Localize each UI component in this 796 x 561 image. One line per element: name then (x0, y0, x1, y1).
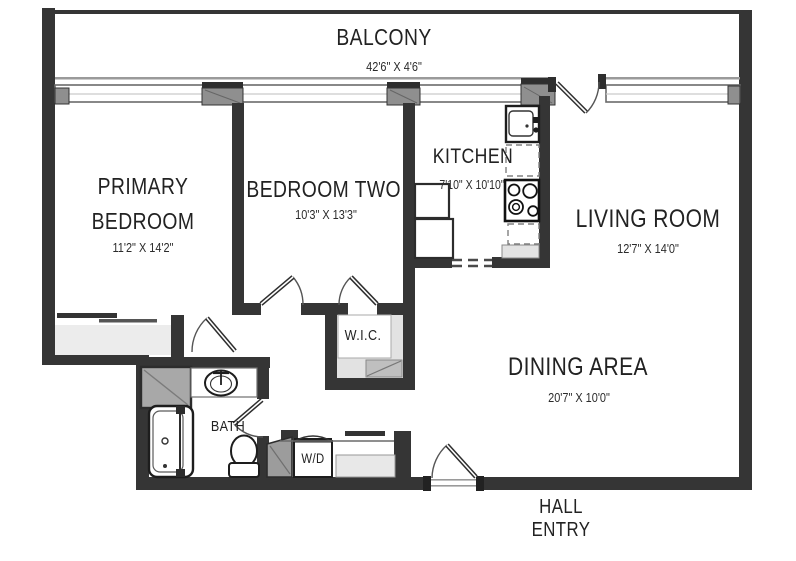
mullion-post (55, 88, 69, 104)
wall-closet-stub (171, 315, 184, 357)
bedroom-two-dims: 10'3" X 13'3" (250, 207, 401, 222)
primary-bedroom-label-line2: BEDROOM (76, 208, 210, 235)
wic-door (339, 277, 377, 305)
kitchen-label: KITCHEN (414, 145, 532, 169)
dining-area-dims: 20'7" X 10'0" (503, 390, 654, 405)
cabinet-dashed (508, 224, 539, 244)
wall-kitchen-bottom (492, 257, 540, 268)
window-wall (55, 74, 740, 105)
wall-wic-bottom (325, 378, 415, 390)
mullion-post (202, 82, 243, 105)
hall-entry-label-line1: HALL (514, 496, 608, 519)
dining-area-label: DINING AREA (502, 353, 653, 382)
floor-plan-geometry (0, 0, 796, 561)
closet-fill (55, 325, 171, 355)
closet-slider-door (99, 319, 157, 323)
closet-rod (345, 431, 385, 436)
bedroom-two-label: BEDROOM TWO (246, 176, 397, 203)
balcony-door-jamb (548, 77, 556, 92)
wall-wic-left (325, 303, 337, 390)
bath-label: BATH (186, 418, 270, 435)
entry-door-jamb (423, 476, 431, 491)
kitchen-dims: 7'10" X 10'10" (413, 178, 531, 192)
floor-plan: BALCONY 42'6" X 4'6" PRIMARY BEDROOM 11'… (0, 0, 796, 561)
bathtub (149, 406, 193, 477)
balcony-door (557, 82, 599, 113)
balcony-door-arc (586, 82, 599, 113)
primary-bedroom-door (192, 318, 235, 352)
faucet-icon (533, 117, 539, 123)
wall-bath-right-upper (257, 357, 269, 399)
balcony-dims: 42'6" X 4'6" (327, 59, 461, 74)
primary-closet (55, 313, 171, 355)
wall-bedroom2-bottom (301, 303, 348, 315)
living-room-dims: 12'7" X 14'0" (572, 241, 723, 256)
wall-left (42, 8, 55, 365)
kitchen-counter-end (502, 245, 539, 258)
wic-door-arc (339, 277, 351, 305)
mullion-post (728, 86, 740, 104)
toilet (229, 436, 259, 478)
tub-faucet (163, 464, 167, 468)
toilet-bowl (231, 436, 257, 467)
refrigerator (415, 219, 453, 258)
mullion-post (387, 82, 420, 105)
primary-bedroom-label-line1: PRIMARY (76, 173, 210, 200)
wic-label: W.I.C. (321, 327, 405, 344)
wall-right (739, 10, 752, 490)
kitchen-pass-through (452, 260, 492, 266)
hall-entry-label-line2: ENTRY (514, 519, 608, 542)
wall-kitchen-right (539, 96, 550, 268)
entry-door-jamb (476, 476, 484, 491)
window-sill-right (606, 77, 740, 80)
bedroom2-door (261, 277, 303, 305)
wall-bedroom2-bottom (236, 303, 261, 315)
wall-kitchen-left (403, 103, 415, 390)
living-room-label: LIVING ROOM (572, 205, 723, 234)
closet-slider-door (57, 313, 117, 318)
toilet-tank (229, 463, 259, 477)
bedroom2-door-arc (293, 277, 303, 305)
primary-bedroom-dims: 11'2" X 14'2" (76, 240, 210, 255)
wic-shelving (337, 315, 403, 378)
entry-door-arc (432, 445, 447, 478)
balcony-label: BALCONY (317, 24, 451, 51)
balcony-rail (55, 10, 752, 14)
laundry-label: W/D (271, 451, 355, 466)
primary-door-arc (192, 318, 207, 352)
hall-entry-door (432, 445, 476, 478)
wall-bedrooms-divider (232, 103, 244, 315)
kitchen-sink (506, 106, 539, 142)
wall-nook-right (394, 431, 411, 477)
bath-vanity (191, 368, 257, 397)
window-sill-left (55, 77, 549, 80)
wall-bedroom2-bottom (377, 303, 415, 315)
